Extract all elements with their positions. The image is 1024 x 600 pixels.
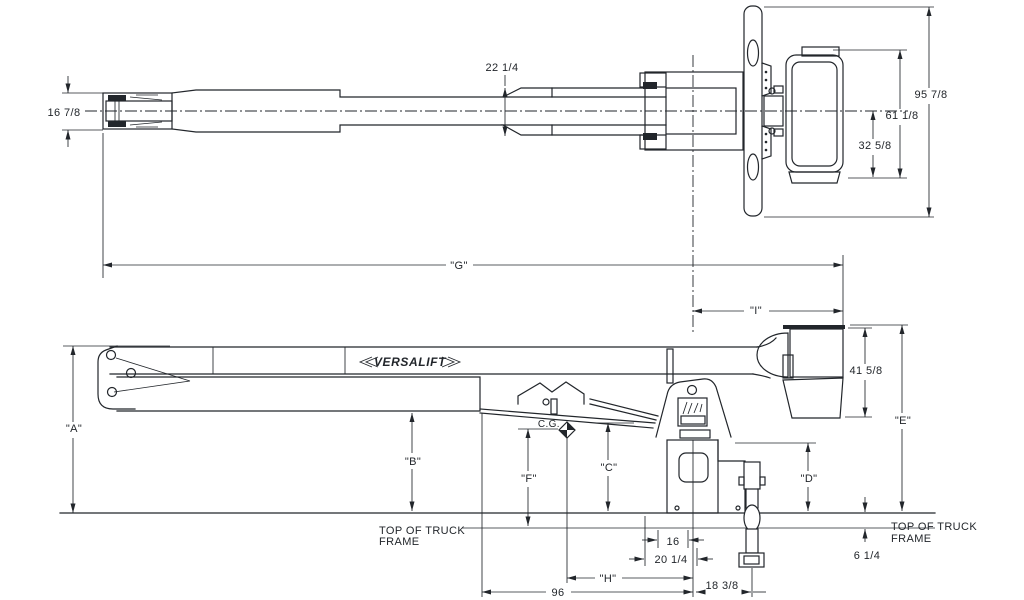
- dim-overall-length-label: "G": [450, 260, 468, 272]
- versalift-logo-text: VERSALIFT: [374, 355, 447, 369]
- dim-platform-span-label: 61 1/8: [886, 110, 919, 122]
- outrigger-jack: [739, 462, 765, 567]
- dim-center-to-platform-label: "I": [750, 305, 762, 317]
- versalift-dimension-drawing: 16 7/8 22 1/4 95 7/8 61 1/8 32 5/8: [0, 0, 1024, 600]
- lower-boom-side-view: [117, 377, 658, 428]
- dim-frame-height: 6 1/4: [854, 497, 880, 562]
- dim-tip-width: 16 7/8: [48, 76, 103, 147]
- dim-height-e-label: "E": [895, 415, 911, 427]
- dim-platform-lower-label: 32 5/8: [859, 140, 892, 152]
- dim-tip-width-label: 16 7/8: [48, 107, 81, 119]
- dim-base-width-label: 16: [666, 536, 679, 548]
- dim-height-b: "B": [405, 413, 421, 511]
- dim-height-a: "A": [63, 346, 170, 513]
- truck-frame-right-line2: FRAME: [891, 533, 932, 545]
- dim-height-f-label: "F": [521, 473, 537, 485]
- platform-side-view: [757, 325, 845, 418]
- dim-center-to-platform: "I": [693, 305, 843, 317]
- dim-height-c-label: "C": [601, 462, 618, 474]
- dim-platform-height: 41 5/8: [845, 328, 882, 417]
- cg-label: C.G.: [538, 419, 560, 430]
- dim-frame-height-label: 6 1/4: [854, 550, 880, 562]
- cg-marker: C.G.: [538, 419, 575, 583]
- dim-overall-length: "G": [103, 133, 843, 325]
- truck-frame-callout-right: TOP OF TRUCK FRAME: [891, 521, 977, 545]
- truck-frame-right-line1: TOP OF TRUCK: [891, 521, 977, 533]
- dim-height-c: "C": [594, 423, 634, 511]
- dim-cg-96: 96: [482, 413, 693, 599]
- dim-center-to-jack: 18 3/8: [696, 568, 766, 597]
- top-view: 16 7/8 22 1/4 95 7/8 61 1/8 32 5/8: [48, 6, 948, 325]
- dim-height-d-label: "D": [801, 473, 818, 485]
- platform-top-view: [786, 47, 843, 183]
- truck-frame-callout-left: TOP OF TRUCK FRAME: [379, 525, 465, 548]
- cg-symbol-icon: [559, 422, 575, 438]
- dim-overall-width-label: 95 7/8: [915, 89, 948, 101]
- dim-height-e: "E": [850, 325, 911, 511]
- dim-center-to-jack-label: 18 3/8: [706, 580, 739, 592]
- dim-platform-height-label: 41 5/8: [850, 365, 883, 377]
- dim-boom-width-label: 22 1/4: [486, 62, 519, 74]
- dim-base-plate-label: 20 1/4: [655, 554, 688, 566]
- side-view: VERSALIFT C.G.: [60, 325, 977, 599]
- truck-frame-left-line2: FRAME: [379, 536, 420, 548]
- dim-height-b-label: "B": [405, 456, 421, 468]
- dim-height-a-label: "A": [66, 423, 82, 435]
- versalift-logo: VERSALIFT: [360, 355, 460, 369]
- dim-span-h: "H": [567, 573, 693, 585]
- dim-span-h-label: "H": [600, 573, 617, 585]
- dim-height-f: "F": [518, 429, 558, 526]
- drawing-sheet: 16 7/8 22 1/4 95 7/8 61 1/8 32 5/8: [0, 0, 1024, 600]
- dim-base-width-16: 16: [642, 530, 704, 548]
- boom-top-view: [172, 88, 666, 135]
- cylinder-bracket: [518, 382, 584, 414]
- dim-cg-96-label: 96: [551, 587, 564, 599]
- dim-platform-span: 61 1/8: [833, 50, 918, 178]
